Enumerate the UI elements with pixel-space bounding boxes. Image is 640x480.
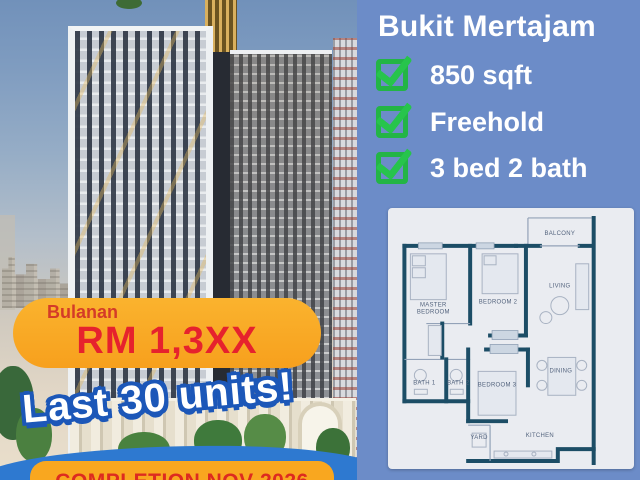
property-ad-poster: Bulanan RM 1,3XX Last 30 units! COMPLETI… (0, 0, 640, 480)
feature-label: 3 bed 2 bath (430, 153, 588, 184)
floorplan-card: BALCONY MASTER BEDROOM BEDROOM 2 LIVING … (388, 208, 634, 469)
checkbox-icon (376, 59, 408, 91)
room-label-bedroom3: BEDROOM 3 (478, 382, 517, 388)
price-badge: Bulanan RM 1,3XX (13, 298, 321, 368)
feature-tenure: Freehold (376, 105, 544, 139)
room-label-master-2: BEDROOM (417, 310, 450, 316)
room-label-living: LIVING (549, 284, 570, 290)
location-title: Bukit Mertajam (378, 10, 596, 44)
room-label-bath2: BATH 2 (447, 380, 470, 386)
info-panel: Bukit Mertajam 850 sqft Freehold 3 bed 2… (357, 0, 640, 480)
room-label-balcony: BALCONY (545, 231, 576, 237)
feature-label: 850 sqft (430, 60, 532, 91)
room-label-bath1: BATH 1 (413, 380, 436, 386)
building-photo: Bulanan RM 1,3XX Last 30 units! COMPLETI… (0, 0, 357, 480)
feature-sqft: 850 sqft (376, 58, 532, 92)
checkbox-icon (376, 106, 408, 138)
room-label-bedroom2: BEDROOM 2 (479, 300, 518, 306)
floorplan-diagram: BALCONY MASTER BEDROOM BEDROOM 2 LIVING … (388, 208, 634, 469)
feature-label: Freehold (430, 107, 544, 138)
room-label-dining: DINING (549, 368, 572, 374)
rooftop-greenery (116, 0, 142, 9)
checkbox-icon (376, 152, 408, 184)
completion-badge: COMPLETION NOV 2026 (30, 461, 334, 480)
room-label-master-1: MASTER (420, 303, 447, 309)
feature-rooms: 3 bed 2 bath (376, 151, 588, 185)
room-label-kitchen: KITCHEN (526, 433, 554, 439)
room-label-yard: YARD (470, 435, 488, 441)
price-amount: RM 1,3XX (13, 320, 321, 363)
